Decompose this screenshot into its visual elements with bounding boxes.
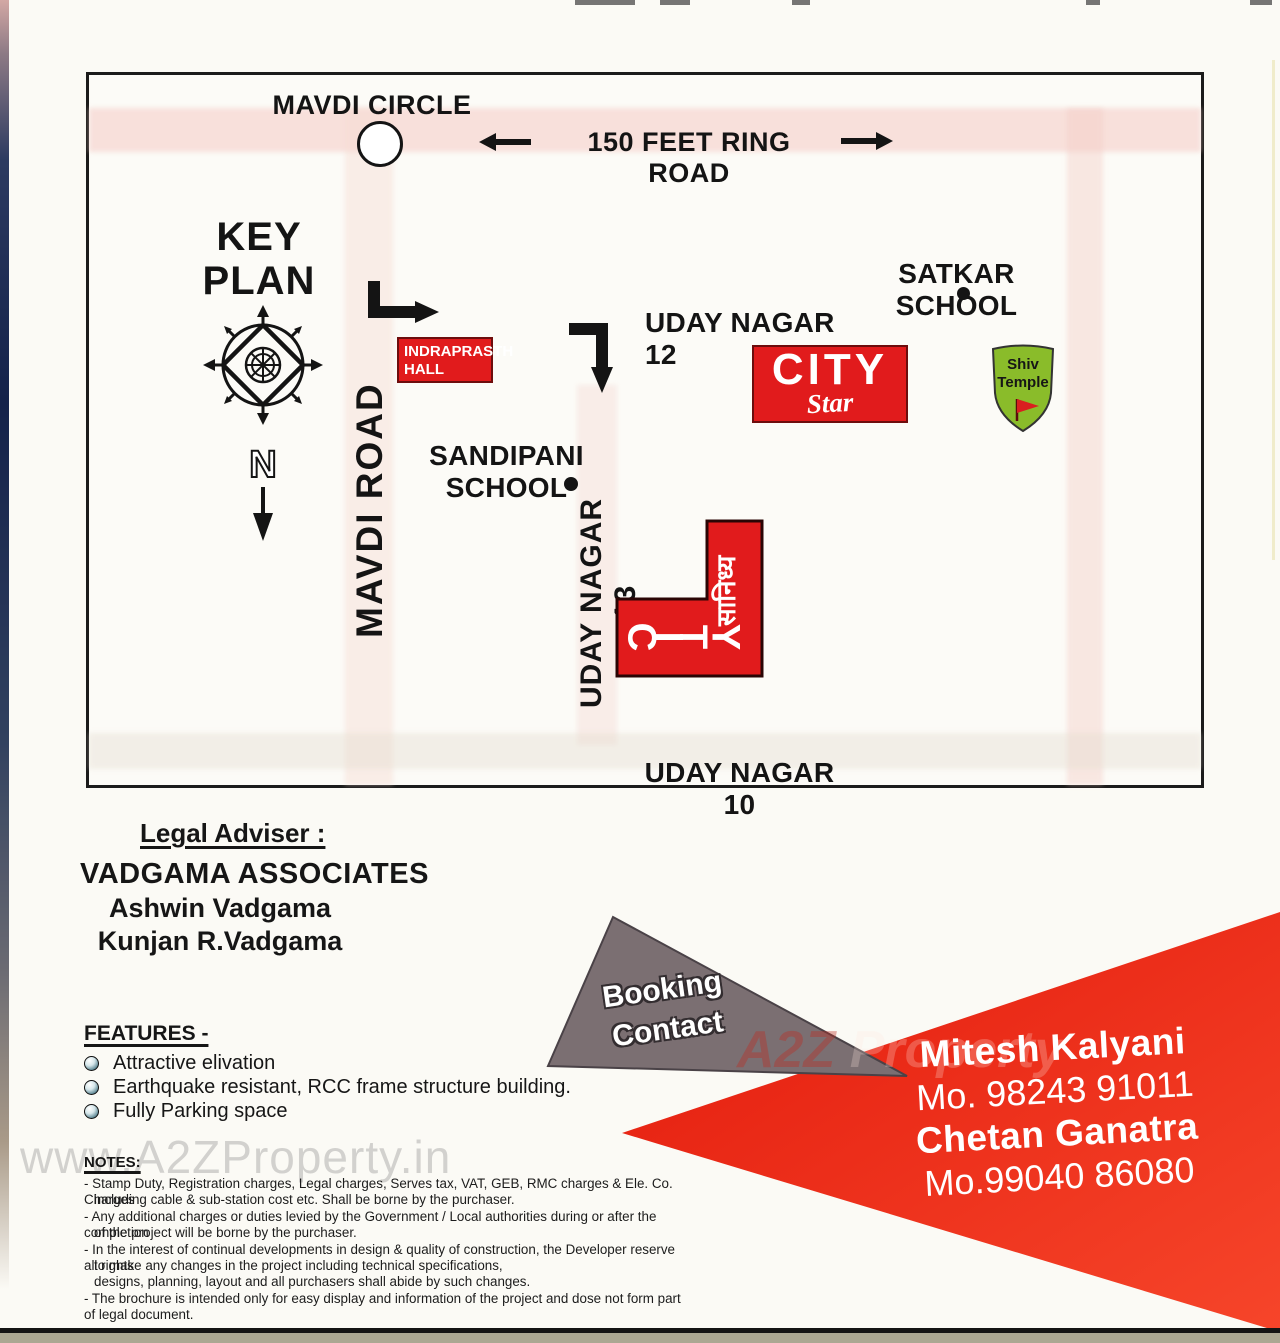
notes-heading: NOTES: <box>84 1154 141 1171</box>
legal-adviser-firm: VADGAMA ASSOCIATES <box>80 858 429 891</box>
city-letters-label: C I T Y <box>627 607 755 667</box>
note-line: designs, planning, layout and all purcha… <box>84 1274 694 1290</box>
bullet-icon <box>84 1056 99 1071</box>
mavdi-road-label: MAVDI ROAD <box>349 363 403 658</box>
note-line: to make any changes in the project inclu… <box>84 1258 694 1274</box>
features-heading: FEATURES - <box>84 1022 208 1046</box>
mavdi-circle-label: MAVDI CIRCLE <box>262 90 482 121</box>
feature-item: Fully Parking space <box>84 1099 644 1123</box>
indraprasth-hall-line2: HALL <box>404 361 486 379</box>
page-edge-mark <box>1086 0 1100 5</box>
city-sanidhya-site-logo: सानिध्य C I T Y <box>615 519 765 679</box>
bullet-icon <box>84 1080 99 1095</box>
city-star-line1: CITY <box>754 349 906 391</box>
sandipani-school-dot-icon <box>564 477 578 491</box>
legal-adviser-heading: Legal Adviser : <box>140 818 325 849</box>
shiv-temple-shield: Shiv Temple <box>987 341 1059 435</box>
brochure-page: MAVDI CIRCLE 150 FEET RING ROAD KEY PLAN <box>0 0 1280 1343</box>
page-edge-mark <box>1250 0 1272 5</box>
uday-nagar-13-label: UDAY NAGAR 13 <box>575 495 619 710</box>
page-spine-shadow <box>0 0 9 1343</box>
sandipani-line1: SANDIPANI <box>419 440 594 472</box>
shiv-temple-line1: Shiv <box>1007 356 1039 373</box>
indraprasth-hall-line1: INDRAPRASTH <box>404 343 486 361</box>
note-line: - The brochure is intended only for easy… <box>84 1291 684 1324</box>
turn-down-arrow-icon <box>569 321 617 395</box>
page-edge-mark <box>1272 60 1275 560</box>
turn-right-arrow-icon <box>367 281 441 329</box>
north-label: N <box>249 444 276 486</box>
feature-text: Attractive elivation <box>113 1052 275 1075</box>
legal-adviser-name: Kunjan R.Vadgama <box>80 926 360 957</box>
map-title-line2: PLAN <box>179 259 339 303</box>
uday-nagar-10-label: UDAY NAGAR 10 <box>637 757 842 821</box>
map-title-line1: KEY <box>179 215 339 259</box>
map-title: KEY PLAN <box>179 215 339 303</box>
legal-adviser-name: Ashwin Vadgama <box>80 893 360 924</box>
note-line: including cable & sub-station cost etc. … <box>84 1192 694 1208</box>
compass-icon: N <box>203 303 323 563</box>
indraprasth-hall-sign: INDRAPRASTH HALL <box>397 337 493 383</box>
satkar-school-dot-icon <box>957 287 970 300</box>
left-arrow-icon <box>479 132 531 152</box>
note-line: of the project will be borne by the purc… <box>84 1225 694 1241</box>
side-road-band <box>1067 108 1103 785</box>
city-letter: Y <box>696 624 756 651</box>
feature-text: Earthquake resistant, RCC frame structur… <box>113 1076 571 1099</box>
booking-contact-details: Mitesh Kalyani Mo. 98243 91011 Chetan Ga… <box>872 1017 1241 1208</box>
page-edge-mark <box>792 0 810 5</box>
mavdi-circle-icon <box>357 121 403 167</box>
ring-road-label: 150 FEET RING ROAD <box>544 127 834 189</box>
feature-text: Fully Parking space <box>113 1100 288 1123</box>
sandipani-school-label: SANDIPANI SCHOOL <box>419 440 594 504</box>
right-arrow-icon <box>841 131 893 151</box>
bullet-icon <box>84 1104 99 1119</box>
shiv-temple-line2: Temple <box>997 374 1048 391</box>
page-edge-mark <box>575 0 635 5</box>
table-surface <box>0 1333 1280 1343</box>
page-edge-mark <box>660 0 690 5</box>
key-plan-map: MAVDI CIRCLE 150 FEET RING ROAD KEY PLAN <box>86 72 1204 788</box>
city-star-sign: CITY Star <box>752 345 908 423</box>
